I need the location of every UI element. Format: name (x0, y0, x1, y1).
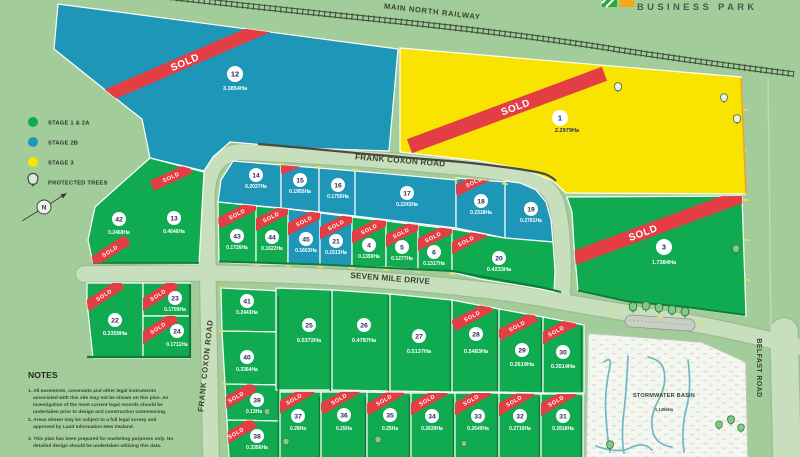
svg-text:45: 45 (302, 236, 310, 243)
svg-text:2.2979Ha: 2.2979Ha (555, 128, 580, 134)
svg-text:undertaken prior to design and: undertaken prior to design and construct… (33, 409, 166, 415)
svg-text:0.2719Ha: 0.2719Ha (509, 426, 531, 432)
svg-text:32: 32 (516, 413, 524, 420)
svg-text:19: 19 (527, 206, 535, 213)
svg-text:0.4787Ha: 0.4787Ha (352, 338, 377, 344)
svg-text:0.1711Ha: 0.1711Ha (166, 342, 188, 348)
svg-text:20: 20 (495, 255, 503, 262)
svg-text:0.2649Ha: 0.2649Ha (467, 426, 489, 432)
svg-text:44: 44 (268, 234, 276, 241)
svg-text:0.2359Ha: 0.2359Ha (103, 331, 128, 337)
svg-text:34: 34 (428, 413, 436, 420)
svg-text:26: 26 (360, 322, 368, 329)
svg-text:0.3364Ha: 0.3364Ha (236, 367, 258, 373)
svg-text:0.1955Ha: 0.1955Ha (289, 189, 311, 195)
svg-text:29: 29 (518, 347, 526, 354)
svg-text:1.1455Ha: 1.1455Ha (655, 407, 674, 412)
svg-text:5: 5 (400, 244, 404, 251)
svg-text:2. Areas shown may be subject: 2. Areas shown may be subject to a full … (28, 417, 156, 423)
svg-text:4: 4 (367, 242, 371, 249)
svg-text:38: 38 (253, 433, 261, 440)
svg-text:detailed design should be unde: detailed design should be undertaken uti… (33, 443, 161, 449)
svg-text:0.2761Ha: 0.2761Ha (520, 218, 542, 224)
svg-text:0.28Ha: 0.28Ha (290, 426, 306, 432)
svg-text:35: 35 (386, 412, 394, 419)
svg-text:3.3854Ha: 3.3854Ha (223, 86, 248, 92)
svg-text:25: 25 (305, 322, 313, 329)
svg-text:0.2037Ha: 0.2037Ha (245, 184, 267, 190)
svg-text:13: 13 (170, 215, 178, 222)
svg-text:0.1359Ha: 0.1359Ha (358, 254, 380, 260)
svg-text:14: 14 (252, 172, 260, 179)
svg-text:23: 23 (171, 295, 179, 302)
svg-text:3. This plan has been prepared: 3. This plan has been prepared for marke… (28, 436, 173, 442)
svg-text:22: 22 (111, 317, 119, 324)
svg-text:0.1277Ha: 0.1277Ha (391, 256, 413, 262)
svg-text:STAGE 3: STAGE 3 (48, 160, 74, 166)
svg-text:PROTECTED TREES: PROTECTED TREES (48, 180, 108, 186)
svg-text:33: 33 (474, 413, 482, 420)
svg-text:investigation of the most curr: investigation of the most current legal … (33, 402, 163, 408)
svg-text:18: 18 (477, 198, 485, 205)
svg-text:associated with this site may: associated with this site may not be sho… (33, 395, 169, 401)
svg-text:21: 21 (332, 238, 340, 245)
svg-text:15: 15 (296, 177, 304, 184)
svg-text:0.1513Ha: 0.1513Ha (325, 250, 347, 256)
svg-text:0.5372Ha: 0.5372Ha (297, 338, 322, 344)
svg-text:27: 27 (415, 333, 423, 340)
svg-text:41: 41 (243, 298, 251, 305)
svg-text:43: 43 (233, 233, 241, 240)
svg-text:STAGE 1 & 2A: STAGE 1 & 2A (48, 120, 90, 126)
svg-text:0.1709Ha: 0.1709Ha (164, 307, 186, 313)
svg-text:BELFAST ROAD: BELFAST ROAD (755, 338, 762, 397)
svg-text:28: 28 (472, 331, 480, 338)
svg-text:1: 1 (558, 113, 562, 122)
svg-text:0.1317Ha: 0.1317Ha (423, 261, 445, 267)
svg-text:0.25Ha: 0.25Ha (336, 426, 352, 432)
svg-text:0.25Ha: 0.25Ha (382, 426, 398, 432)
svg-text:16: 16 (334, 182, 342, 189)
svg-text:12: 12 (231, 69, 239, 78)
svg-text:0.2639Ha: 0.2639Ha (421, 426, 443, 432)
svg-text:0.1726Ha: 0.1726Ha (226, 245, 248, 251)
svg-text:1. All easements, covenants an: 1. All easements, covenants and other le… (28, 388, 156, 394)
svg-text:approved by Land Information N: approved by Land Information New Zealand… (33, 424, 134, 430)
svg-text:STAGE 2B: STAGE 2B (48, 140, 78, 146)
svg-text:1.7384Ha: 1.7384Ha (652, 260, 677, 266)
svg-text:0.4646Ha: 0.4646Ha (163, 229, 185, 235)
svg-text:40: 40 (243, 354, 251, 361)
svg-text:BUSINESS PARK: BUSINESS PARK (637, 1, 758, 12)
svg-text:0.3514Ha: 0.3514Ha (551, 364, 576, 370)
svg-text:42: 42 (115, 216, 123, 223)
svg-text:30: 30 (559, 349, 567, 356)
svg-text:31: 31 (559, 413, 567, 420)
svg-text:0.2619Ha: 0.2619Ha (510, 362, 535, 368)
svg-text:6: 6 (432, 249, 436, 256)
svg-text:37: 37 (294, 413, 302, 420)
svg-text:0.13Ha: 0.13Ha (246, 409, 262, 415)
svg-text:0.5483Ha: 0.5483Ha (464, 349, 489, 355)
svg-text:N: N (42, 205, 47, 212)
svg-text:3: 3 (662, 242, 666, 251)
svg-text:0.5137Ha: 0.5137Ha (407, 349, 432, 355)
svg-text:0.2243Ha: 0.2243Ha (396, 202, 418, 208)
svg-text:0.1756Ha: 0.1756Ha (327, 194, 349, 200)
svg-text:17: 17 (403, 190, 411, 197)
svg-text:39: 39 (253, 397, 261, 404)
svg-text:0.2468Ha: 0.2468Ha (108, 230, 130, 236)
svg-text:36: 36 (340, 412, 348, 419)
svg-text:NOTES: NOTES (28, 370, 58, 380)
svg-text:0.2443Ha: 0.2443Ha (236, 310, 258, 316)
svg-text:24: 24 (173, 328, 181, 335)
svg-text:0.1622Ha: 0.1622Ha (261, 246, 283, 252)
svg-text:0.3356Ha: 0.3356Ha (246, 445, 268, 451)
svg-text:0.1603Ha: 0.1603Ha (295, 248, 317, 254)
svg-text:0.2818Ha: 0.2818Ha (552, 426, 574, 432)
svg-text:0.2318Ha: 0.2318Ha (470, 210, 492, 216)
svg-text:0.4233Ha: 0.4233Ha (487, 267, 512, 273)
svg-text:STORMWATER BASIN: STORMWATER BASIN (633, 393, 695, 399)
